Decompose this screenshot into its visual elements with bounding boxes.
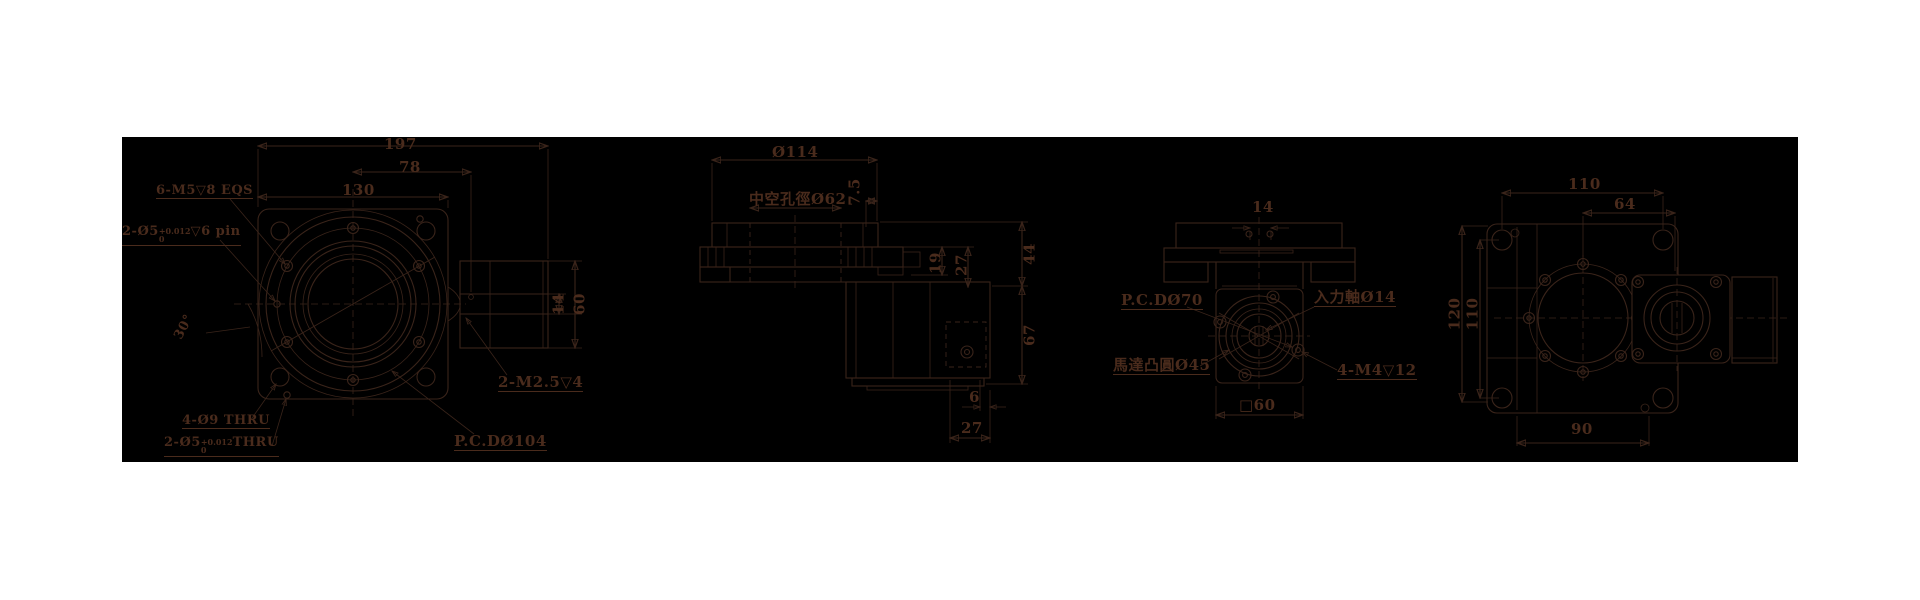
- dim-square-60: □60: [1239, 398, 1276, 413]
- dim-110-top: 110: [1568, 177, 1601, 192]
- drawing-canvas: 197 78 130 6-M5▽8 EQS 2-Ø5+0.0120▽6 pin …: [0, 0, 1920, 600]
- label-side-tap: 2-M2.5▽4: [498, 375, 583, 392]
- dim-64: 64: [1614, 197, 1636, 212]
- dim-90-bottom: 90: [1571, 422, 1593, 437]
- pin-label-prefix: 2-Ø5: [122, 224, 159, 239]
- dim-6: 6: [969, 390, 980, 405]
- label-tap-4-m4: 4-M4▽12: [1337, 363, 1417, 380]
- dim-7-5: 7.5: [848, 178, 863, 206]
- pin-tolerance: +0.0120: [159, 227, 191, 244]
- label-2-holes-thru: 2-Ø5+0.0120THRU: [164, 436, 279, 457]
- thru2-tol-lower: 0: [201, 446, 233, 454]
- dim-67: 67: [1023, 324, 1038, 346]
- drawing-sheet: 197 78 130 6-M5▽8 EQS 2-Ø5+0.0120▽6 pin …: [122, 137, 1798, 462]
- dim-120-left: 120: [1448, 298, 1463, 331]
- front-view-drawing: [206, 146, 582, 446]
- label-pcd104: P.C.DØ104: [454, 434, 547, 451]
- label-pin-holes: 2-Ø5+0.0120▽6 pin: [122, 225, 241, 246]
- label-tap-6-m5: 6-M5▽8 EQS: [156, 184, 253, 199]
- thru2-tolerance: +0.0120: [201, 438, 233, 455]
- label-pcd70: P.C.DØ70: [1121, 293, 1203, 310]
- label-4-holes-thru: 4-Ø9 THRU: [182, 414, 270, 429]
- thru2-prefix: 2-Ø5: [164, 435, 201, 450]
- dim-14-side: 14: [552, 293, 567, 315]
- dim-14-shaft: 14: [1252, 200, 1274, 215]
- dim-27-bottom: 27: [961, 421, 983, 436]
- dim-19: 19: [929, 252, 944, 274]
- thru2-suffix: THRU: [233, 435, 279, 450]
- label-input-shaft: 入力軸Ø14: [1314, 290, 1396, 307]
- dim-78: 78: [399, 160, 421, 175]
- dim-130: 130: [342, 183, 375, 198]
- pin-label-suffix: ▽6 pin: [191, 224, 241, 239]
- rear-view-drawing: [1462, 193, 1790, 446]
- label-hollow-bore: 中空孔徑Ø62: [749, 192, 846, 207]
- dim-od-114: Ø114: [772, 145, 818, 160]
- pin-tol-lower: 0: [159, 235, 191, 243]
- label-motor-boss: 馬達凸圓Ø45: [1113, 358, 1210, 375]
- dim-44: 44: [1023, 243, 1038, 265]
- dim-27-side: 27: [955, 254, 970, 276]
- dim-60-side: 60: [573, 293, 588, 315]
- dim-197: 197: [384, 137, 417, 152]
- dim-110-left: 110: [1466, 298, 1481, 331]
- motor-mount-view-drawing: [1164, 217, 1355, 419]
